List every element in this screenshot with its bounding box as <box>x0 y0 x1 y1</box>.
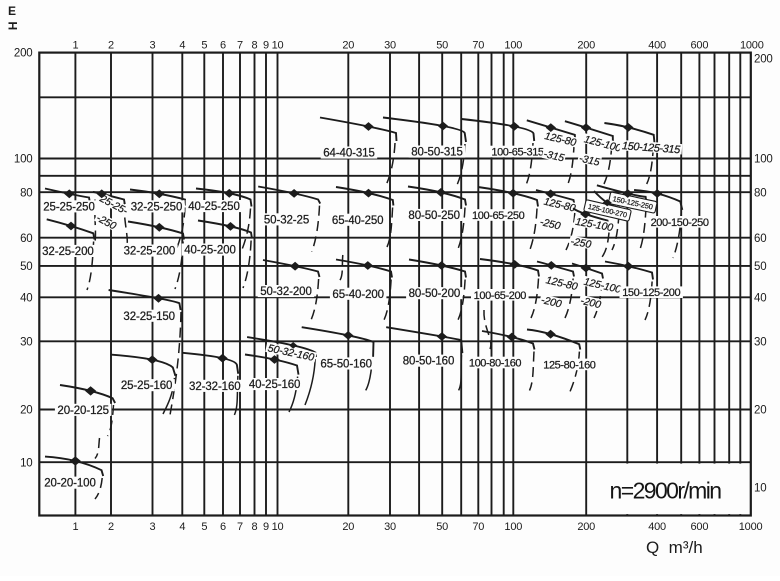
svg-text:600: 600 <box>691 40 709 52</box>
svg-text:200: 200 <box>754 54 773 66</box>
svg-text:40: 40 <box>754 292 766 304</box>
svg-text:9: 9 <box>263 40 269 52</box>
svg-text:n=2900r/min: n=2900r/min <box>610 478 722 504</box>
svg-text:50: 50 <box>436 40 448 52</box>
svg-text:100-65-200: 100-65-200 <box>474 290 527 302</box>
svg-text:20-20-125: 20-20-125 <box>57 405 109 417</box>
svg-text:30: 30 <box>384 40 396 52</box>
svg-text:30: 30 <box>754 336 766 348</box>
svg-text:200: 200 <box>577 521 595 533</box>
svg-text:70: 70 <box>472 40 484 52</box>
svg-text:3: 3 <box>150 521 156 533</box>
svg-text:100-80-160: 100-80-160 <box>469 358 522 370</box>
svg-text:100: 100 <box>14 154 33 166</box>
svg-text:80: 80 <box>754 187 766 199</box>
svg-text:150-125-200: 150-125-200 <box>622 287 680 299</box>
svg-text:200: 200 <box>14 48 33 60</box>
svg-text:40-25-200: 40-25-200 <box>184 245 236 257</box>
svg-text:100: 100 <box>754 154 773 166</box>
svg-text:25-25-250: 25-25-250 <box>43 201 95 213</box>
svg-text:Q m³/h: Q m³/h <box>646 538 703 557</box>
svg-text:H: H <box>6 22 20 31</box>
svg-text:32-25-250: 32-25-250 <box>131 201 183 213</box>
svg-text:50-32-200: 50-32-200 <box>260 286 312 298</box>
svg-text:30: 30 <box>20 336 32 348</box>
svg-text:2: 2 <box>108 521 114 533</box>
svg-text:1000: 1000 <box>740 40 764 52</box>
svg-text:200-150-250: 200-150-250 <box>651 217 709 229</box>
svg-text:125-80-160: 125-80-160 <box>543 359 596 371</box>
svg-text:400: 400 <box>648 40 666 52</box>
svg-text:65-40-200: 65-40-200 <box>332 289 384 301</box>
svg-text:80: 80 <box>20 187 32 199</box>
svg-text:32-25-200: 32-25-200 <box>124 246 176 258</box>
svg-text:5: 5 <box>201 521 207 533</box>
svg-text:7: 7 <box>237 40 243 52</box>
svg-text:7: 7 <box>237 521 243 533</box>
svg-text:50: 50 <box>436 521 448 533</box>
svg-text:100: 100 <box>504 40 522 52</box>
svg-text:100-65-315: 100-65-315 <box>491 147 544 159</box>
svg-text:6: 6 <box>220 40 226 52</box>
svg-text:10: 10 <box>272 521 284 533</box>
svg-text:70: 70 <box>472 521 484 533</box>
svg-text:30: 30 <box>384 521 396 533</box>
svg-text:40: 40 <box>20 292 32 304</box>
svg-text:64-40-315: 64-40-315 <box>323 148 375 160</box>
svg-text:2: 2 <box>108 40 114 52</box>
svg-text:E: E <box>8 4 16 18</box>
svg-text:65-40-250: 65-40-250 <box>332 215 384 227</box>
svg-text:10: 10 <box>754 483 766 495</box>
svg-text:600: 600 <box>691 521 709 533</box>
svg-text:1: 1 <box>72 40 78 52</box>
svg-text:60: 60 <box>754 233 766 245</box>
svg-text:40-25-160: 40-25-160 <box>249 379 301 391</box>
svg-text:3: 3 <box>150 40 156 52</box>
svg-text:5: 5 <box>201 40 207 52</box>
svg-text:200: 200 <box>577 40 595 52</box>
svg-text:60: 60 <box>20 233 32 245</box>
svg-text:100: 100 <box>504 521 522 533</box>
svg-text:80-50-315: 80-50-315 <box>411 147 463 159</box>
svg-text:80-50-200: 80-50-200 <box>409 288 461 300</box>
svg-text:50: 50 <box>754 261 766 273</box>
svg-text:20: 20 <box>754 405 766 417</box>
svg-text:20-20-100: 20-20-100 <box>44 478 96 490</box>
svg-text:1: 1 <box>72 521 78 533</box>
svg-text:6: 6 <box>220 521 226 533</box>
svg-text:80-50-160: 80-50-160 <box>403 356 455 368</box>
svg-text:25-25-160: 25-25-160 <box>121 380 173 392</box>
svg-text:100-65-250: 100-65-250 <box>472 210 525 222</box>
svg-text:8: 8 <box>252 521 258 533</box>
svg-text:400: 400 <box>648 521 666 533</box>
svg-text:32-32-160: 32-32-160 <box>189 381 241 393</box>
svg-text:32-25-200: 32-25-200 <box>42 246 94 258</box>
svg-text:20: 20 <box>342 521 354 533</box>
svg-text:10: 10 <box>272 40 284 52</box>
svg-text:20: 20 <box>342 40 354 52</box>
svg-text:4: 4 <box>179 40 185 52</box>
svg-text:1000: 1000 <box>739 521 763 533</box>
svg-text:9: 9 <box>263 521 269 533</box>
svg-text:4: 4 <box>179 521 185 533</box>
svg-text:40-25-250: 40-25-250 <box>188 201 240 213</box>
svg-text:8: 8 <box>252 40 258 52</box>
svg-text:20: 20 <box>20 405 32 417</box>
svg-text:50: 50 <box>20 261 32 273</box>
svg-text:80-50-250: 80-50-250 <box>408 210 460 222</box>
svg-text:32-25-150: 32-25-150 <box>123 311 175 323</box>
svg-text:10: 10 <box>20 457 32 469</box>
svg-text:65-50-160: 65-50-160 <box>320 359 372 371</box>
svg-text:50-32-25: 50-32-25 <box>264 214 309 226</box>
